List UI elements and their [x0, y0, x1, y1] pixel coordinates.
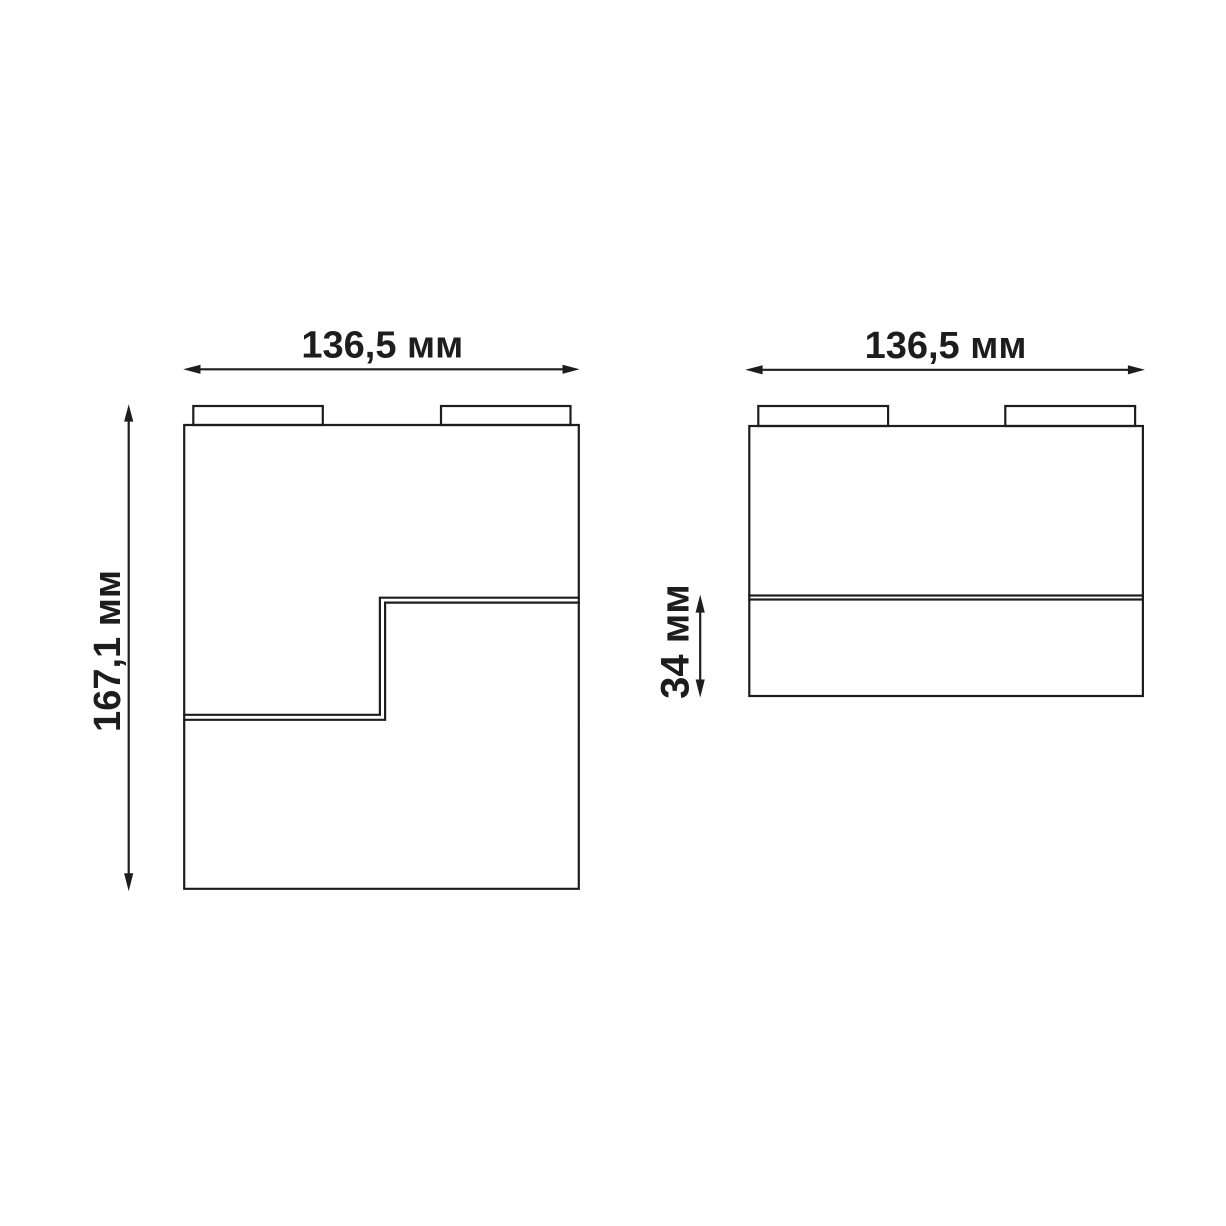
svg-text:136,5 мм: 136,5 мм	[865, 325, 1027, 367]
svg-text:136,5 мм: 136,5 мм	[301, 324, 463, 366]
svg-text:34 мм: 34 мм	[654, 584, 698, 699]
svg-text:167,1 мм: 167,1 мм	[87, 570, 129, 732]
